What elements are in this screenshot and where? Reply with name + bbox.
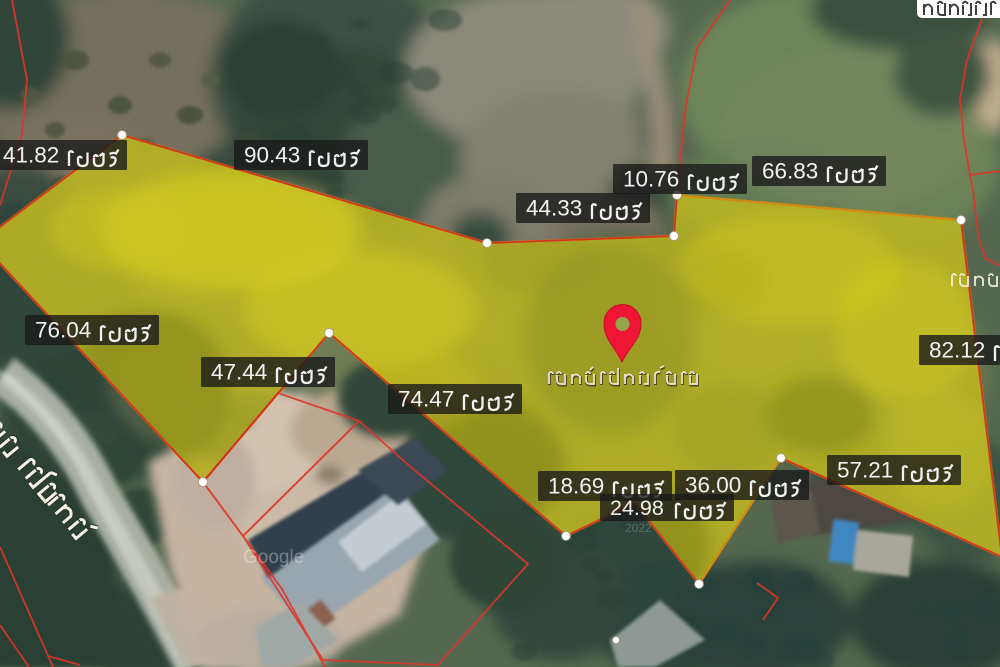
svg-text:57.21: 57.21 (837, 458, 893, 483)
svg-text:90.43: 90.43 (244, 143, 300, 168)
svg-text:76.04: 76.04 (35, 318, 91, 343)
svg-text:44.33: 44.33 (526, 196, 582, 221)
svg-text:36.00: 36.00 (685, 473, 741, 498)
svg-text:Google: Google (243, 547, 304, 568)
svg-text:74.47: 74.47 (398, 387, 454, 412)
svg-text:66.83: 66.83 (762, 159, 818, 184)
svg-text:41.82: 41.82 (3, 143, 59, 168)
svg-text:18.69: 18.69 (548, 474, 604, 499)
svg-text:24.98: 24.98 (610, 496, 664, 520)
svg-text:2022: 2022 (625, 521, 652, 535)
svg-text:10.76: 10.76 (623, 167, 679, 192)
svg-text:82.12: 82.12 (929, 338, 985, 363)
svg-text:47.44: 47.44 (211, 360, 267, 385)
